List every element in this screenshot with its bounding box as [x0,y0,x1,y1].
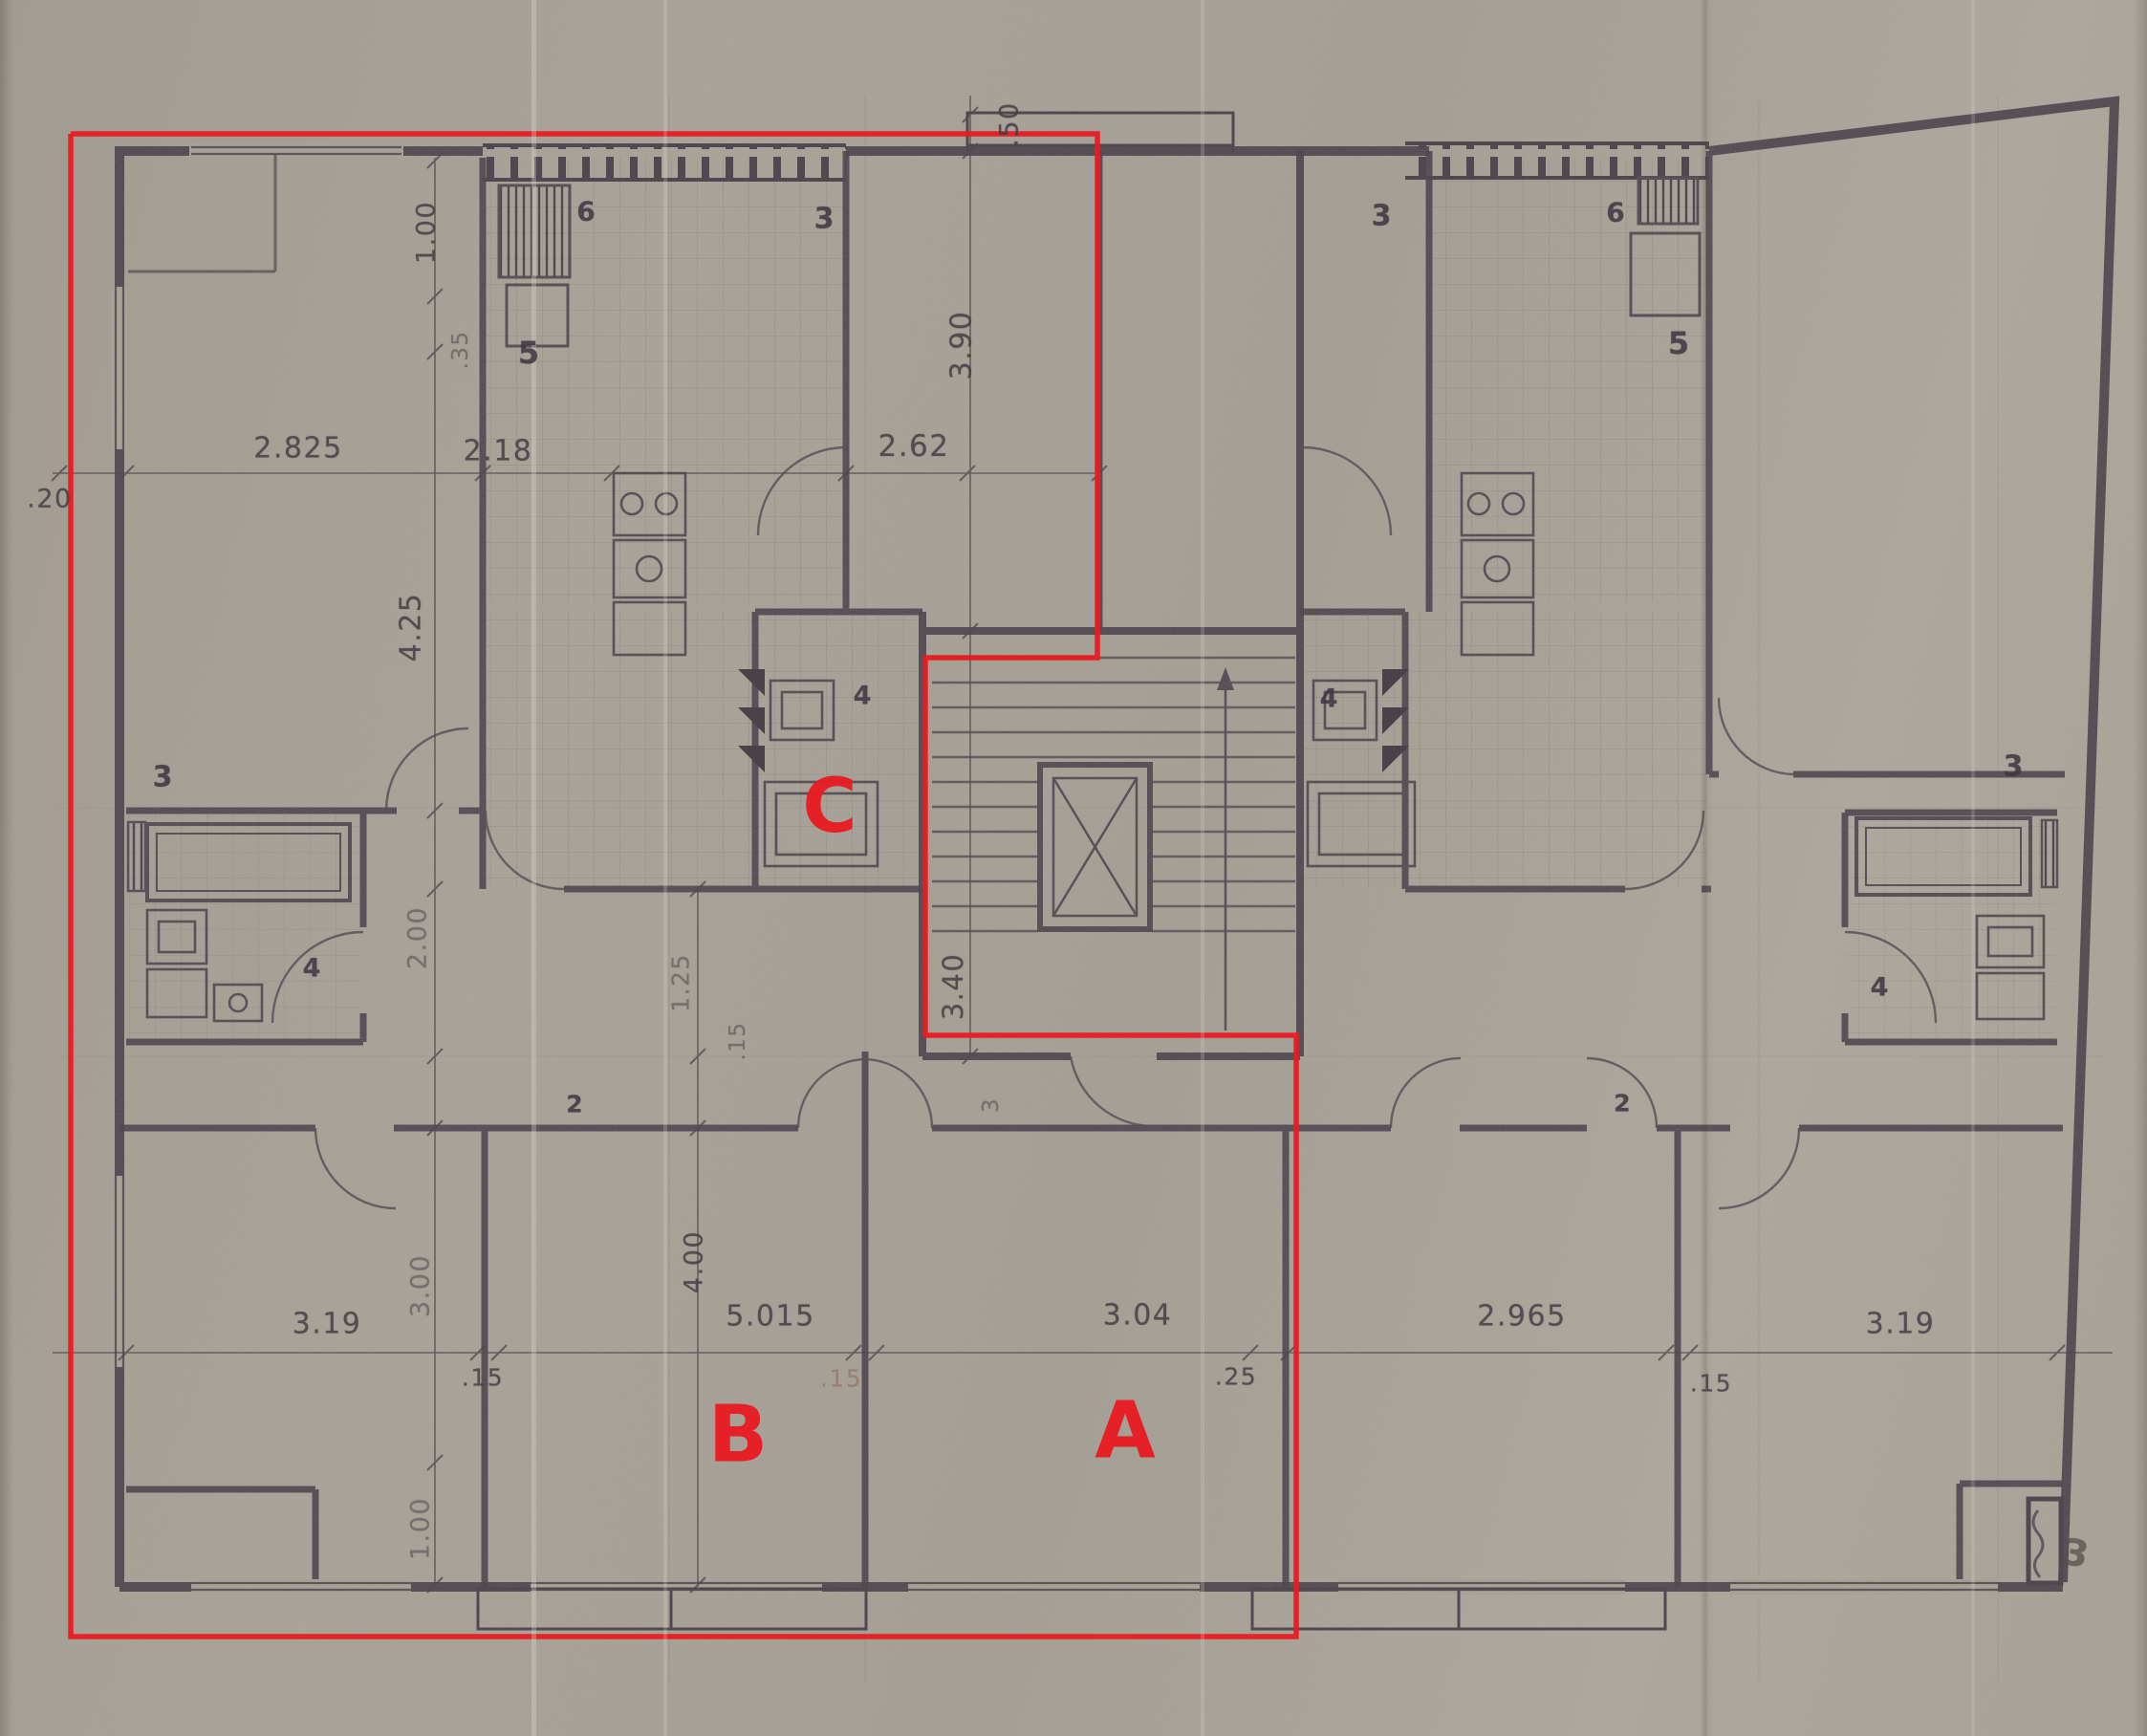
dim-label-2965: 2.965 [1477,1300,1566,1334]
room-label-right-5: 5 [1668,325,1689,361]
room-label-left-2-hall: 2 [566,1091,582,1118]
room-label-right-6: 6 [1606,197,1624,228]
dim-label-390: 3.90 [945,311,979,380]
room-label-right-4-core: 4 [1320,684,1338,714]
dim-label-319-left: 3.19 [293,1308,362,1341]
dim-label-262: 2.62 [878,429,949,464]
room-label-right-3-side: 3 [2004,750,2024,784]
dim-label-025: .25 [1215,1363,1257,1391]
dim-label-2825: 2.825 [253,432,342,466]
room-label-left-5: 5 [518,335,539,371]
dim-label-015-mid: .15 [726,1021,750,1060]
room-label-right-2-hall: 2 [1614,1090,1630,1118]
dim-label-340: 3.40 [937,953,969,1021]
room-label-left-6: 6 [576,196,595,228]
room-label-left-4-core: 4 [854,682,872,711]
red-unit-label-c: C [802,764,857,850]
dim-label-218: 2.18 [464,435,533,468]
room-label-left-3-top: 3 [814,203,835,236]
dim-label-319-right: 3.19 [1866,1308,1936,1341]
red-unit-label-a: A [1095,1386,1155,1477]
dim-label-200: 2.00 [403,906,433,969]
dim-label-400: 4.00 [680,1230,709,1293]
dim-label-5015: 5.015 [726,1300,814,1334]
dim-label-050: .50 [995,101,1025,146]
red-unit-label-b: B [708,1390,769,1481]
dim-label-304: 3.04 [1103,1299,1173,1333]
dim-label-015-b: .15 [820,1365,862,1393]
dim-label-035: .35 [448,330,473,369]
dim-label-425: 4.25 [395,593,428,662]
dim-label-300: 3.00 [406,1254,436,1317]
floor-plan-drawing [0,0,2147,1736]
room-label-right-4-bath: 4 [1871,973,1889,1003]
room-label-right-3-top: 3 [1372,200,1392,233]
room-label-left-4-bath: 4 [303,954,321,984]
dim-label-020: .20 [27,485,72,514]
paper-grain [0,0,2147,1736]
room-label-left-3-side: 3 [153,761,173,794]
dim-label-015-c: .15 [1690,1370,1732,1398]
floor-plan-scan: 2.825 2.18 2.62 .20 3.19 .15 5.015 .15 3… [0,0,2147,1736]
dim-label-3-small: 3 [979,1097,1004,1113]
dim-label-125: 1.25 [667,953,695,1012]
dim-label-100-bottom: 1.00 [406,1497,436,1560]
dim-label-015-a: .15 [462,1364,504,1392]
dim-label-100-top: 1.00 [412,201,442,264]
